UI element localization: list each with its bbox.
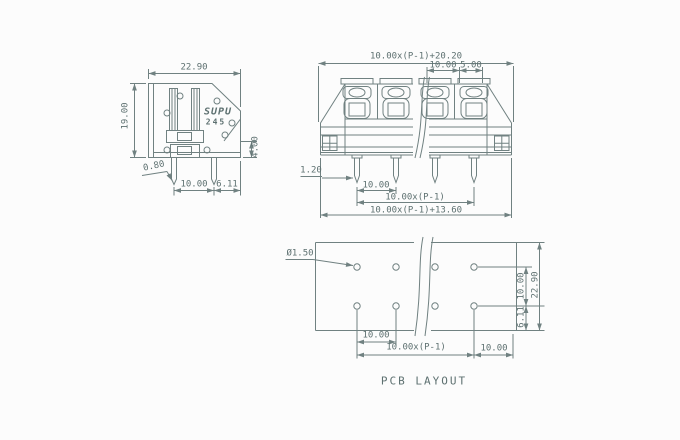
technical-drawing-page: 22.90 19.00 4.00 0.80 10.00 6.11 SUPU 24… bbox=[0, 0, 680, 440]
mounting-peg-left bbox=[323, 136, 338, 151]
pcb-outline bbox=[316, 243, 517, 331]
break-line bbox=[415, 77, 425, 158]
dim-side-height: 19.00 bbox=[122, 102, 131, 129]
break-line bbox=[415, 237, 423, 336]
break-line bbox=[425, 237, 433, 336]
dim-side-pin-step: 4.00 bbox=[252, 136, 261, 158]
dim-pcb-height: 22.90 bbox=[532, 271, 541, 298]
dim-front-pin-width: 1.20 bbox=[300, 167, 322, 176]
dim-front-pin-span: 10.00x(P-1) bbox=[385, 194, 445, 203]
dim-side-pin-edge: 6.11 bbox=[216, 181, 238, 190]
dim-pcb-end-offset: 10.00 bbox=[480, 345, 507, 354]
dim-pcb-pitch: 10.00 bbox=[362, 332, 389, 341]
dim-pcb-edge-clearance: 6.11 bbox=[518, 306, 527, 328]
front-body-right-edge bbox=[487, 84, 512, 155]
front-body-left-edge bbox=[321, 84, 346, 155]
dim-front-pin-pitch: 10.00 bbox=[362, 182, 389, 191]
drawing-linework bbox=[0, 0, 680, 440]
pcb-layout-drawing bbox=[286, 237, 545, 359]
terminal-screws bbox=[343, 87, 488, 119]
side-clamp-slot bbox=[170, 89, 178, 131]
dim-front-half-pitch: 5.00 bbox=[460, 62, 482, 71]
model-number: 245 bbox=[206, 118, 226, 127]
side-clamp-slot bbox=[192, 89, 200, 131]
pcb-holes bbox=[354, 264, 477, 309]
side-pin bbox=[172, 158, 177, 185]
front-pins bbox=[352, 155, 479, 183]
dim-front-pitch: 10.00 bbox=[429, 62, 456, 71]
dim-pcb-hole-diameter: Ø1.50 bbox=[286, 250, 313, 259]
terminal-caps bbox=[341, 79, 490, 85]
dim-side-pin-pitch: 10.00 bbox=[180, 181, 207, 190]
side-view-drawing bbox=[130, 69, 257, 196]
mounting-peg-right bbox=[495, 136, 510, 151]
dim-side-width: 22.90 bbox=[180, 64, 207, 73]
dim-pcb-span: 10.00x(P-1) bbox=[386, 344, 446, 353]
dim-pcb-row-spacing: 10.00 bbox=[518, 272, 527, 299]
dim-front-mounting-width: 10.00x(P-1)+13.60 bbox=[370, 207, 462, 216]
drawing-caption: PCB LAYOUT bbox=[381, 375, 467, 388]
brand-logo: SUPU bbox=[204, 107, 232, 118]
